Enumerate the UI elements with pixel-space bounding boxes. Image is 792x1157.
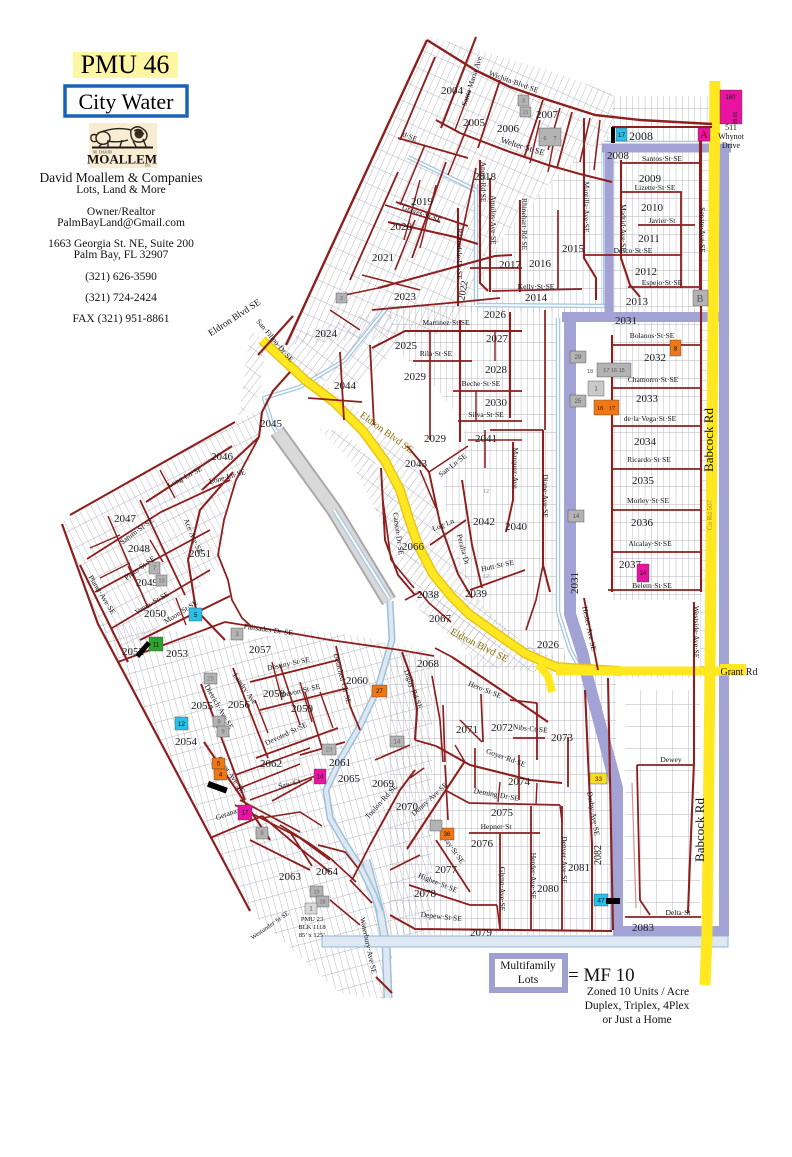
svg-text:17: 17 (618, 132, 626, 139)
svg-text:Hepner·St: Hepner·St (481, 822, 513, 831)
svg-text:12: 12 (178, 721, 186, 728)
svg-text:2078: 2078 (414, 888, 437, 900)
svg-text:18: 18 (597, 406, 603, 412)
svg-text:33: 33 (595, 776, 603, 783)
svg-text:Silva·St·SE: Silva·St·SE (468, 410, 504, 419)
svg-text:2024: 2024 (315, 328, 338, 340)
svg-text:2007: 2007 (536, 109, 559, 121)
svg-text:2082: 2082 (593, 845, 604, 865)
svg-text:Co Rd 507: Co Rd 507 (706, 499, 714, 530)
svg-text:2035: 2035 (632, 475, 655, 487)
svg-text:de·la·Vega·St·SE: de·la·Vega·St·SE (624, 414, 677, 423)
svg-text:Lots: Lots (518, 974, 539, 986)
svg-text:= MF 10: = MF 10 (568, 965, 635, 986)
svg-text:2068: 2068 (417, 658, 440, 670)
svg-text:2077: 2077 (435, 864, 458, 876)
svg-text:Lots, Land & More: Lots, Land & More (76, 184, 165, 196)
svg-text:Drive: Drive (722, 141, 741, 150)
svg-text:8: 8 (674, 345, 678, 352)
svg-text:PalmBayLand@Gmail.com: PalmBayLand@Gmail.com (57, 217, 185, 229)
svg-text:2027: 2027 (486, 333, 509, 345)
svg-text:2050: 2050 (144, 608, 167, 620)
svg-text:2009: 2009 (639, 173, 662, 185)
svg-text:511: 511 (725, 123, 737, 132)
svg-text:2006: 2006 (497, 123, 520, 135)
svg-text:2079: 2079 (470, 927, 493, 939)
svg-text:Martinez·St·SE: Martinez·St·SE (422, 318, 469, 327)
svg-text:Zoned 10 Units / Acre: Zoned 10 Units / Acre (587, 986, 689, 998)
svg-text:85’ x 125’: 85’ x 125’ (299, 932, 326, 939)
svg-text:Chamorro·St·SE: Chamorro·St·SE (628, 375, 679, 384)
svg-text:2053: 2053 (166, 648, 189, 660)
svg-text:2061: 2061 (329, 757, 351, 769)
svg-text:180’: 180’ (725, 95, 736, 101)
svg-text:(321) 724-2424: (321) 724-2424 (85, 292, 157, 304)
svg-text:Rhinehart·Rd·SE: Rhinehart·Rd·SE (520, 198, 529, 250)
svg-text:2036: 2036 (631, 517, 654, 529)
svg-text:2040: 2040 (505, 521, 528, 533)
svg-text:Mantilla·Ave·SE: Mantilla·Ave·SE (582, 181, 591, 233)
svg-text:Multifamily: Multifamily (500, 960, 556, 972)
svg-text:2054: 2054 (175, 736, 198, 748)
svg-text:2042: 2042 (473, 516, 495, 528)
svg-text:2041: 2041 (475, 433, 497, 445)
svg-text:2083: 2083 (632, 922, 655, 934)
svg-text:Dewey: Dewey (660, 755, 681, 764)
svg-text:2051: 2051 (189, 548, 211, 560)
svg-text:Delta·St: Delta·St (666, 908, 692, 917)
svg-text:2039: 2039 (465, 588, 488, 600)
svg-text:2045: 2045 (260, 418, 283, 430)
svg-text:2030: 2030 (485, 397, 508, 409)
svg-text:2005: 2005 (463, 117, 486, 129)
svg-text:2071: 2071 (456, 724, 478, 736)
svg-text:BLK 1118: BLK 1118 (298, 924, 325, 931)
svg-text:2004: 2004 (441, 85, 464, 97)
svg-text:12: 12 (483, 489, 489, 495)
svg-text:5: 5 (194, 612, 198, 619)
svg-text:2057: 2057 (249, 644, 272, 656)
svg-text:2074: 2074 (508, 776, 531, 788)
svg-text:18: 18 (319, 899, 325, 905)
svg-text:2067: 2067 (429, 613, 452, 625)
svg-text:2010: 2010 (641, 202, 664, 214)
svg-text:Aquilos·Ave·SE: Aquilos·Ave·SE (489, 195, 498, 245)
svg-text:2080: 2080 (537, 883, 560, 895)
svg-text:2029: 2029 (424, 433, 447, 445)
svg-text:2060: 2060 (346, 675, 369, 687)
svg-text:Bolanos·St·SE: Bolanos·St·SE (630, 331, 675, 340)
svg-text:2056: 2056 (228, 699, 251, 711)
svg-text:2026: 2026 (537, 639, 560, 651)
svg-text:Rila·St·SE: Rila·St·SE (420, 349, 453, 358)
svg-text:2017: 2017 (499, 259, 522, 271)
svg-text:2046: 2046 (211, 451, 234, 463)
svg-text:2081: 2081 (568, 862, 590, 874)
svg-text:Marquez·Ave: Marquez·Ave (511, 447, 520, 489)
svg-text:2038: 2038 (417, 589, 440, 601)
svg-text:(321) 626-3590: (321) 626-3590 (85, 271, 157, 283)
svg-text:Morley·St·SE: Morley·St·SE (627, 496, 670, 505)
svg-text:6: 6 (544, 136, 547, 142)
svg-text:Ricardo·St·SE: Ricardo·St·SE (627, 455, 671, 464)
svg-text:2034: 2034 (634, 436, 657, 448)
svg-text:2066: 2066 (402, 541, 425, 553)
svg-text:2049: 2049 (136, 577, 159, 589)
svg-text:2031: 2031 (615, 315, 637, 327)
svg-text:2008: 2008 (607, 150, 630, 162)
svg-text:Palm Bay, FL 32907: Palm Bay, FL 32907 (74, 249, 169, 261)
svg-text:Javier·St: Javier·St (649, 216, 677, 225)
svg-text:2065: 2065 (338, 773, 361, 785)
svg-text:Senate·Ave·SE: Senate·Ave·SE (698, 207, 707, 253)
svg-text:29: 29 (575, 355, 582, 361)
svg-text:Whynot: Whynot (718, 132, 745, 141)
svg-text:2033: 2033 (636, 393, 659, 405)
svg-text:Duplex, Triplex, 4Plex: Duplex, Triplex, 4Plex (585, 1000, 690, 1012)
svg-text:17: 17 (242, 811, 249, 817)
svg-text:2055: 2055 (191, 700, 214, 712)
svg-text:2043: 2043 (405, 458, 428, 470)
svg-text:Westside·Ave·SE: Westside·Ave·SE (692, 606, 701, 659)
svg-text:2064: 2064 (316, 866, 339, 878)
svg-text:2072: 2072 (491, 722, 513, 734)
svg-text:14: 14 (640, 571, 647, 577)
svg-text:19: 19 (313, 889, 319, 895)
svg-text:INC: INC (145, 164, 152, 168)
svg-text:Babcock Rd: Babcock Rd (701, 408, 716, 472)
svg-text:2029: 2029 (404, 371, 427, 383)
svg-text:2076: 2076 (471, 838, 494, 850)
svg-text:14: 14 (573, 514, 580, 520)
svg-text:2018: 2018 (474, 171, 497, 183)
svg-text:13: 13 (158, 578, 164, 584)
svg-text:Ramsdale·Dr·SE: Ramsdale·Dr·SE (455, 228, 464, 280)
svg-text:Kelly·St·SE: Kelly·St·SE (518, 282, 555, 291)
svg-text:17 16 15: 17 16 15 (603, 368, 624, 374)
svg-text:47: 47 (597, 897, 605, 904)
svg-text:2044: 2044 (334, 380, 357, 392)
svg-text:3: 3 (522, 98, 525, 104)
svg-text:Beche·St·SE: Beche·St·SE (462, 379, 501, 388)
svg-text:Espejo·St·SE: Espejo·St·SE (642, 278, 683, 287)
svg-text:2025: 2025 (395, 340, 418, 352)
svg-text:2075: 2075 (491, 807, 514, 819)
svg-text:2016: 2016 (529, 258, 552, 270)
svg-text:2063: 2063 (279, 871, 302, 883)
svg-text:2069: 2069 (372, 778, 395, 790)
svg-text:2020: 2020 (390, 221, 413, 233)
svg-text:18: 18 (587, 369, 593, 375)
svg-text:2015: 2015 (562, 243, 585, 255)
svg-text:2008: 2008 (629, 129, 653, 143)
svg-text:2032: 2032 (644, 352, 666, 364)
svg-text:2014: 2014 (525, 292, 548, 304)
svg-text:11: 11 (153, 641, 160, 648)
svg-text:14: 14 (394, 740, 401, 746)
svg-text:Diane·Ave·SE: Diane·Ave·SE (541, 474, 550, 518)
svg-text:25: 25 (207, 677, 214, 683)
svg-text:PMU 23: PMU 23 (301, 916, 323, 923)
svg-text:Desco·St·SE: Desco·St·SE (614, 246, 653, 255)
svg-text:2012: 2012 (635, 266, 657, 278)
svg-text:Belem·St·SE: Belem·St·SE (632, 581, 672, 590)
svg-text:12: 12 (483, 574, 489, 580)
svg-text:2048: 2048 (128, 543, 151, 555)
svg-text:2070: 2070 (396, 801, 419, 813)
svg-text:2062: 2062 (260, 758, 282, 770)
svg-text:2021: 2021 (372, 252, 394, 264)
svg-text:B: B (697, 294, 704, 305)
svg-text:2073: 2073 (551, 732, 574, 744)
svg-text:Glynn·Ave·SE: Glynn·Ave·SE (498, 867, 507, 912)
svg-text:or Just a Home: or Just a Home (602, 1014, 671, 1026)
svg-text:A: A (700, 129, 708, 141)
svg-text:2023: 2023 (394, 291, 417, 303)
svg-text:2058: 2058 (263, 688, 286, 700)
svg-text:2011: 2011 (638, 233, 660, 245)
svg-text:Alcalay·St·SE: Alcalay·St·SE (628, 539, 672, 548)
svg-text:2019: 2019 (411, 196, 434, 208)
svg-text:2059: 2059 (291, 703, 314, 715)
svg-text:7: 7 (554, 136, 557, 142)
svg-text:36: 36 (444, 832, 451, 838)
svg-text:2047: 2047 (114, 513, 137, 525)
svg-text:Grant Rd: Grant Rd (721, 667, 758, 678)
svg-text:14: 14 (317, 775, 324, 781)
svg-text:27: 27 (376, 689, 383, 695)
svg-text:2031: 2031 (569, 572, 581, 594)
svg-text:23: 23 (326, 748, 333, 754)
svg-text:23: 23 (523, 110, 529, 116)
svg-text:25: 25 (575, 399, 582, 405)
svg-text:Denver·Ave·SE: Denver·Ave·SE (560, 836, 569, 884)
svg-text:Babcock Rd: Babcock Rd (692, 798, 707, 862)
svg-text:2026: 2026 (484, 309, 507, 321)
svg-text:FAX (321) 951-8861: FAX (321) 951-8861 (73, 313, 170, 325)
svg-text:PMU 46: PMU 46 (81, 50, 170, 79)
svg-text:2028: 2028 (485, 364, 508, 376)
svg-text:2: 2 (340, 296, 343, 302)
svg-text:Santos·St·SE: Santos·St·SE (642, 154, 682, 163)
svg-text:City Water: City Water (79, 89, 175, 114)
svg-text:David Moallem & Companies: David Moallem & Companies (39, 170, 202, 185)
svg-text:17: 17 (609, 406, 615, 412)
svg-text:2013: 2013 (626, 296, 649, 308)
